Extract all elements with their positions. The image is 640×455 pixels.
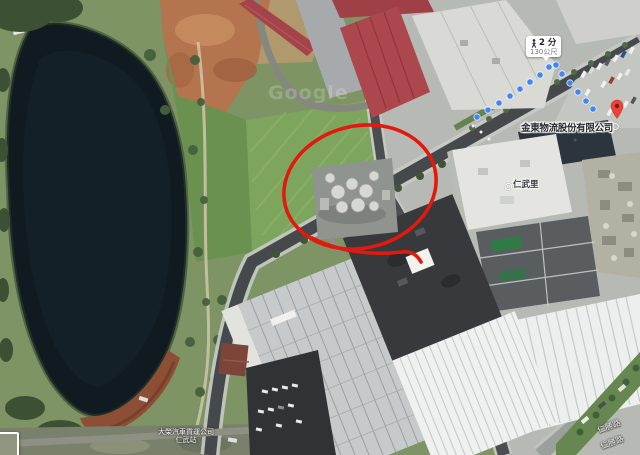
route-dot	[517, 86, 523, 92]
business-label-line1: 大榮汽車貨運公司	[140, 428, 232, 436]
route-dot	[583, 98, 589, 104]
business-label[interactable]: 大榮汽車貨運公司 仁武站	[140, 428, 232, 444]
satellite-map-canvas[interactable]: Google 2 分 130公尺 金東物流股份有限公司 仁武里 仁勝路 仁勝路 …	[0, 0, 640, 455]
poi-label[interactable]: 仁武里	[513, 178, 539, 190]
route-dot	[507, 93, 513, 99]
satellite-imagery	[0, 0, 640, 455]
poi-dot-icon	[505, 183, 512, 190]
route-info-bubble[interactable]: 2 分 130公尺	[526, 36, 561, 57]
destination-anchor-ring-icon	[612, 123, 619, 130]
route-dot	[567, 80, 573, 86]
route-duration: 2 分	[539, 38, 556, 48]
destination-label[interactable]: 金東物流股份有限公司	[521, 120, 613, 134]
walking-icon	[531, 39, 537, 48]
route-dot	[590, 106, 596, 112]
business-label-line2: 仁武站	[140, 436, 232, 444]
route-dot	[527, 79, 533, 85]
route-dot	[485, 107, 491, 113]
map-inset-thumbnail[interactable]	[0, 432, 19, 455]
route-dot	[553, 62, 559, 68]
route-dot	[474, 114, 480, 120]
route-dot	[496, 100, 502, 106]
route-dot	[559, 71, 565, 77]
route-dot	[575, 89, 581, 95]
google-watermark: Google	[268, 82, 349, 104]
route-dot	[537, 72, 543, 78]
route-distance: 130公尺	[530, 48, 557, 56]
route-dot	[546, 64, 552, 70]
